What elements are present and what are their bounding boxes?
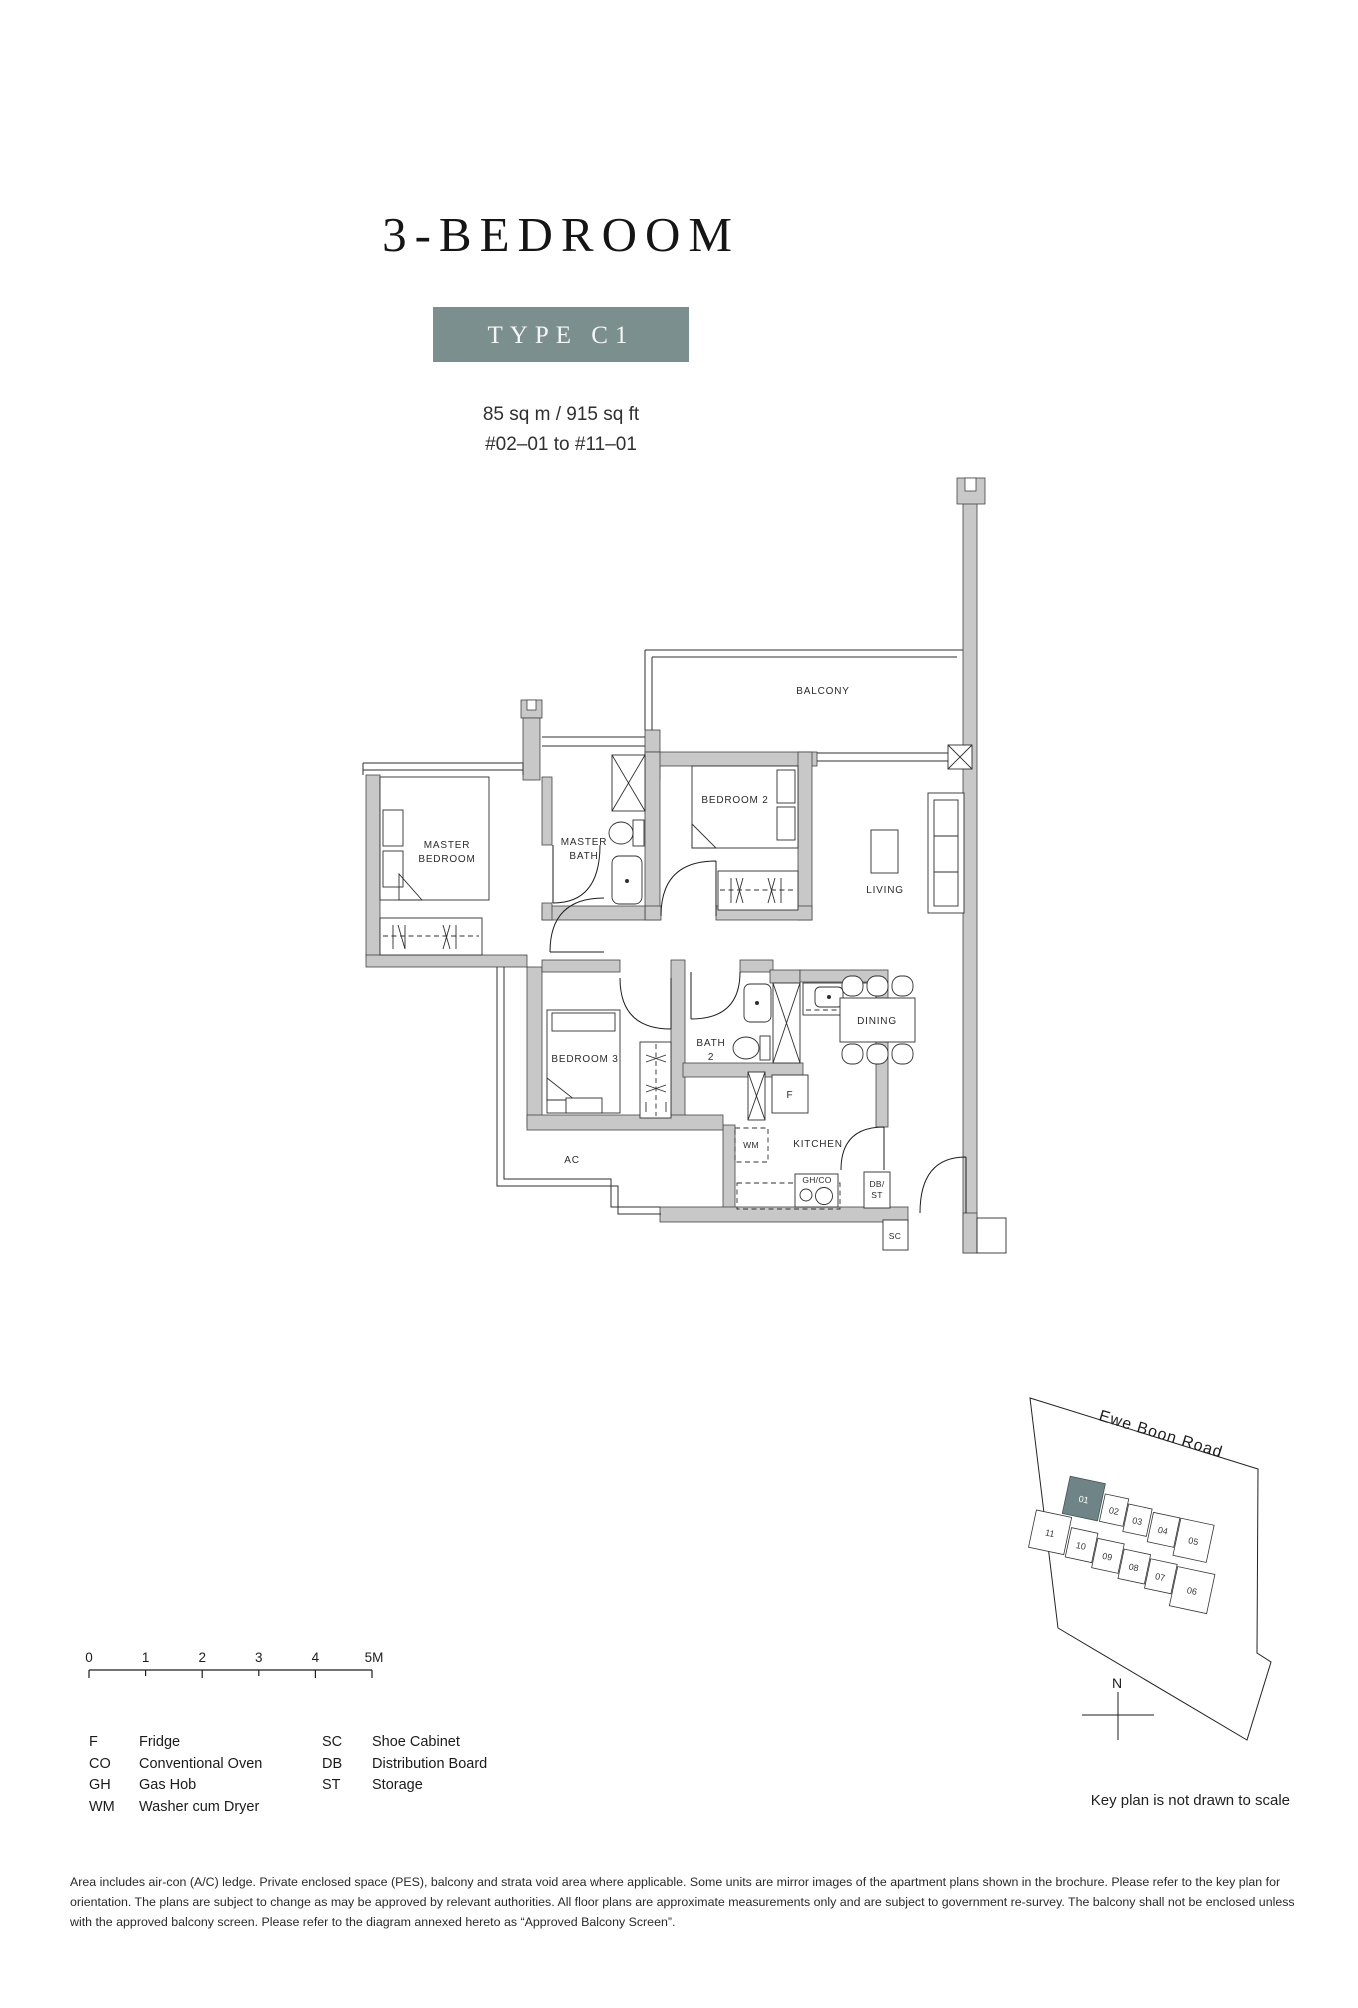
legend-row: GHGas Hob <box>89 1775 262 1797</box>
master-bath-label-2: BATH <box>569 851 598 862</box>
legend-abbr: CO <box>89 1754 139 1776</box>
keyplan-unit-04: 04 <box>1157 1525 1169 1537</box>
legend-row: SCShoe Cabinet <box>322 1732 487 1754</box>
living-label: LIVING <box>866 885 904 896</box>
legend-left-column: FFridge COConventional Oven GHGas Hob WM… <box>89 1732 262 1818</box>
legend-row: WMWasher cum Dryer <box>89 1797 262 1819</box>
keyplan-unit-03: 03 <box>1131 1515 1143 1527</box>
legend-abbr: WM <box>89 1797 139 1819</box>
legend-label: Gas Hob <box>139 1777 196 1793</box>
shoe-cabinet-label: SC <box>889 1231 901 1241</box>
keyplan-unit-09: 09 <box>1101 1551 1113 1563</box>
scale-tick-2: 2 <box>198 1650 206 1665</box>
keyplan-unit-06: 06 <box>1186 1585 1198 1597</box>
legend-label: Storage <box>372 1777 423 1793</box>
legend-abbr: SC <box>322 1732 372 1754</box>
washer-label: WM <box>743 1140 759 1150</box>
kitchen-label: KITCHEN <box>793 1139 843 1150</box>
keyplan-unit-01: 01 <box>1078 1494 1090 1506</box>
legend-row: DBDistribution Board <box>322 1754 487 1776</box>
keyplan-unit-05: 05 <box>1187 1535 1199 1547</box>
unit-type-badge: TYPE C1 <box>433 307 689 362</box>
brochure-page: 3-BEDROOM TYPE C1 85 sq m / 915 sq ft #0… <box>0 0 1358 2008</box>
legend-label: Conventional Oven <box>139 1756 262 1772</box>
keyplan-unit-02: 02 <box>1108 1505 1120 1517</box>
bedroom3-label: BEDROOM 3 <box>551 1054 618 1065</box>
page-title: 3-BEDROOM <box>261 206 861 263</box>
keyplan-unit-07: 07 <box>1154 1571 1166 1583</box>
hob-label: GH/CO <box>802 1175 831 1185</box>
master-bath-label-1: MASTER <box>561 837 607 848</box>
bedroom2-furniture <box>692 766 798 910</box>
legend-abbr: DB <box>322 1754 372 1776</box>
legend-abbr: GH <box>89 1775 139 1797</box>
scale-tick-0: 0 <box>85 1650 93 1665</box>
unit-area: 85 sq m / 915 sq ft <box>361 404 761 426</box>
scale-tick-1: 1 <box>142 1650 150 1665</box>
master-bath-fixtures <box>609 755 645 904</box>
disclaimer-text: Area includes air-con (A/C) ledge. Priva… <box>70 1872 1300 1932</box>
master-bedroom-label-1: MASTER <box>424 840 470 851</box>
scale-tick-3: 3 <box>255 1650 263 1665</box>
db-label-1: DB/ <box>869 1179 884 1189</box>
keyplan-note: Key plan is not drawn to scale <box>1040 1792 1290 1809</box>
legend-row: STStorage <box>322 1775 487 1797</box>
master-bedroom-furniture <box>380 777 489 955</box>
bedroom2-label: BEDROOM 2 <box>701 795 768 806</box>
legend-right-column: SCShoe Cabinet DBDistribution Board STSt… <box>322 1732 487 1797</box>
legend-label: Washer cum Dryer <box>139 1799 259 1815</box>
legend-row: FFridge <box>89 1732 262 1754</box>
scale-tick-4: 4 <box>312 1650 320 1665</box>
legend-abbr: ST <box>322 1775 372 1797</box>
legend-abbr: F <box>89 1732 139 1754</box>
road-label: Ewe Boon Road <box>1097 1408 1225 1462</box>
master-bedroom-label-2: BEDROOM <box>418 854 475 865</box>
north-indicator: N <box>1082 1675 1154 1740</box>
bath2-fixtures <box>733 983 800 1063</box>
legend-label: Shoe Cabinet <box>372 1734 460 1750</box>
legend-label: Distribution Board <box>372 1756 487 1772</box>
balcony-label: BALCONY <box>796 686 849 697</box>
compass-cross-icon <box>1082 1692 1154 1740</box>
key-plan: Ewe Boon Road 01 02 03 04 05 11 10 09 08… <box>1015 1385 1295 1755</box>
unit-range: #02–01 to #11–01 <box>361 434 761 456</box>
scale-tick-5: 5M <box>365 1650 384 1665</box>
keyplan-unit-08: 08 <box>1128 1561 1140 1573</box>
ac-label: AC <box>564 1155 580 1166</box>
dining-label: DINING <box>857 1016 897 1027</box>
keyplan-unit-10: 10 <box>1075 1540 1087 1552</box>
bath2-label-1: BATH <box>696 1038 725 1049</box>
fridge-label: F <box>787 1090 794 1101</box>
north-label: N <box>1112 1675 1122 1691</box>
bath2-label-2: 2 <box>708 1052 714 1063</box>
floor-plan: BALCONY MASTER BEDROOM MASTER BATH BEDRO… <box>340 470 1020 1270</box>
db-label-2: ST <box>871 1190 882 1200</box>
scale-bar: 0 1 2 3 4 5M <box>80 1645 390 1685</box>
legend-row: COConventional Oven <box>89 1754 262 1776</box>
scale-bar-line <box>89 1670 372 1678</box>
legend-label: Fridge <box>139 1734 180 1750</box>
